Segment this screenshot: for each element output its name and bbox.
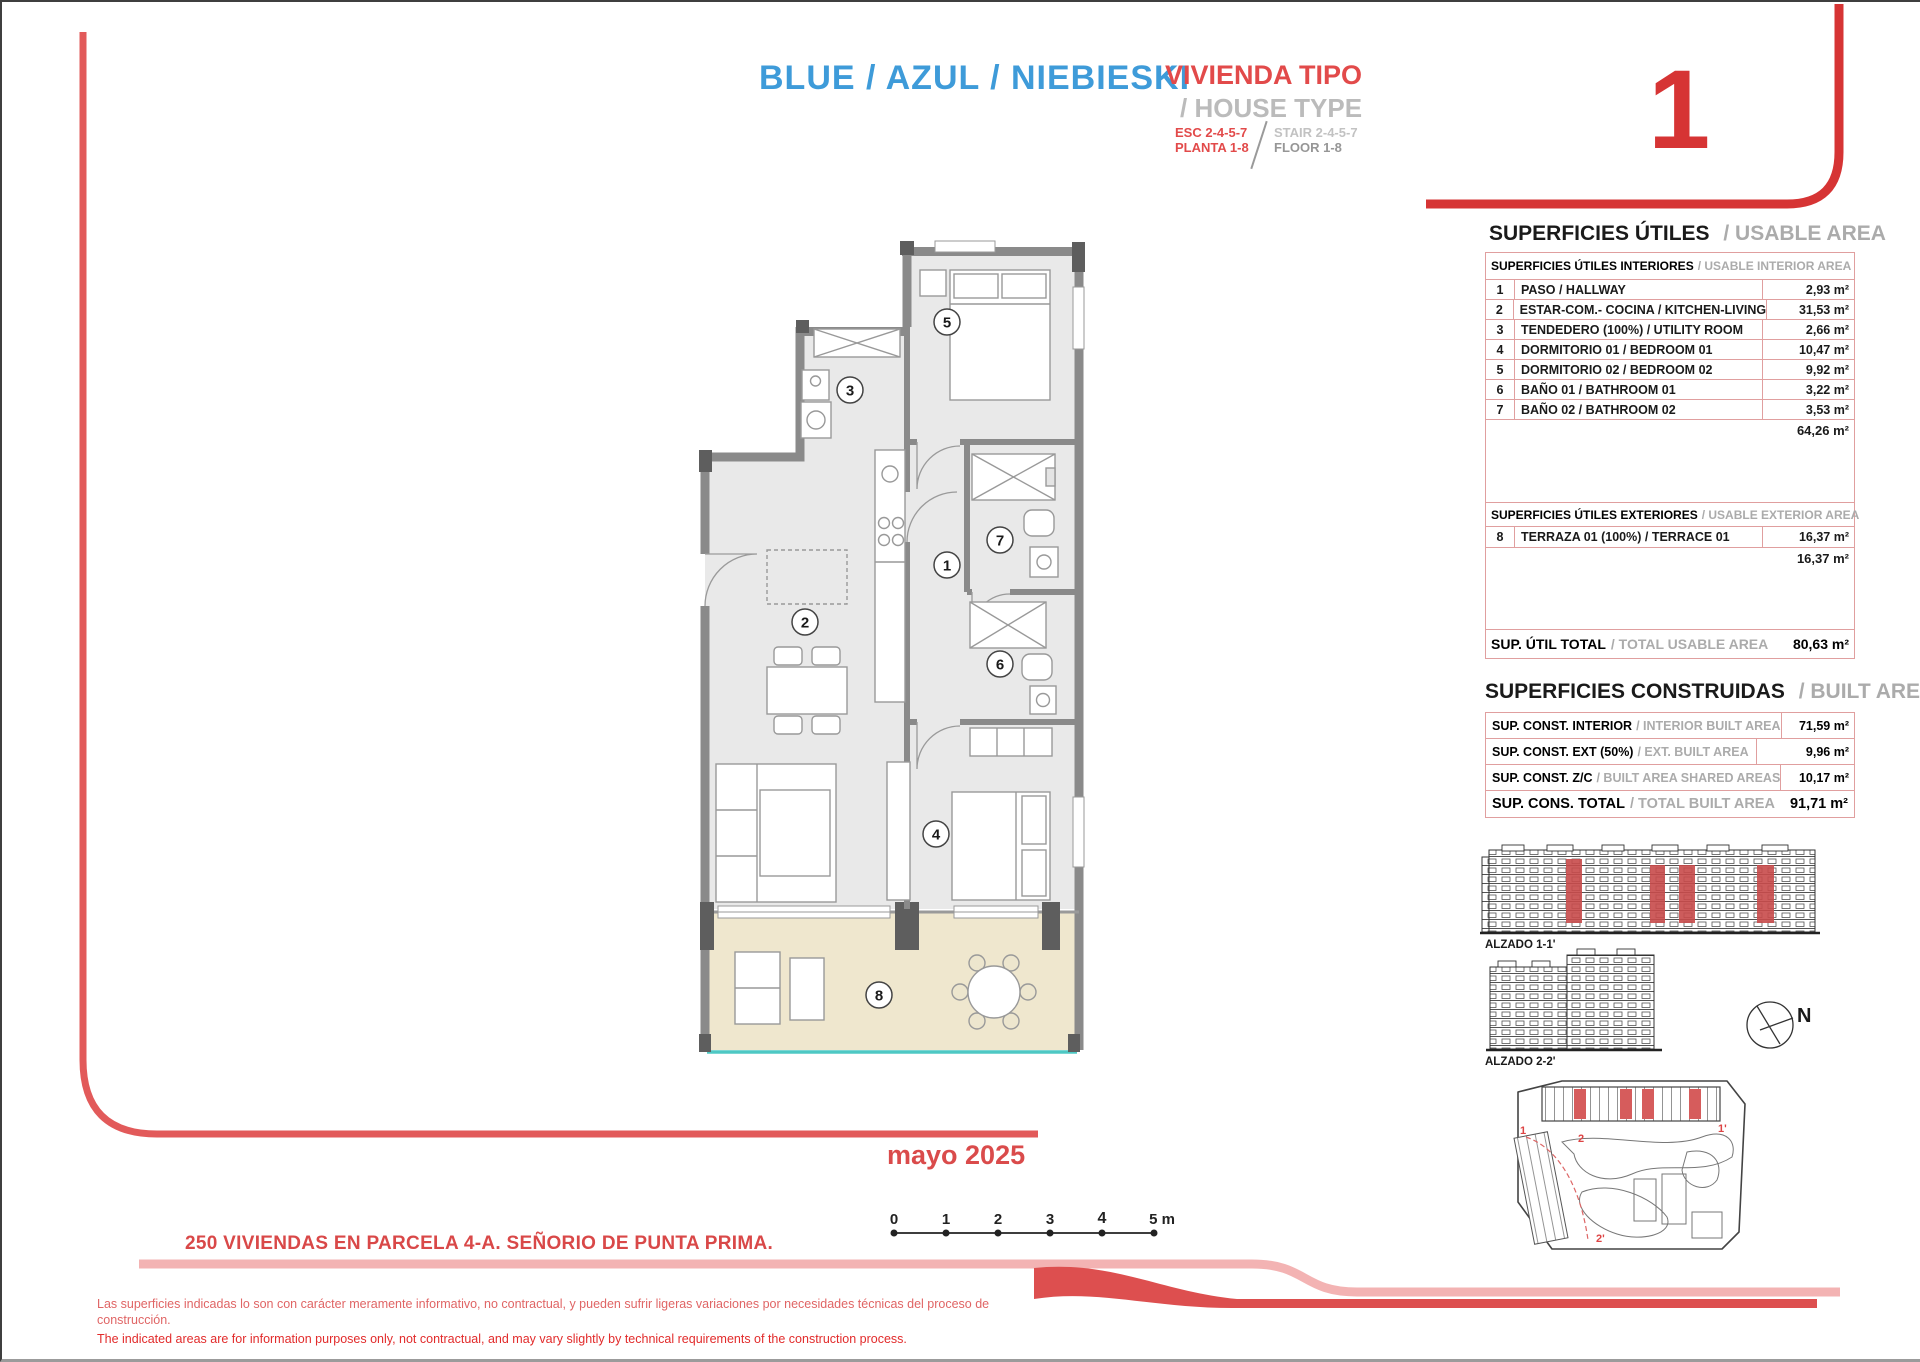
row-label-es: SUP. CONST. Z/C [1492,771,1592,785]
row-area: 3,53 m² [1762,400,1854,419]
usable-total-row: SUP. ÚTIL TOTAL / TOTAL USABLE AREA 80,6… [1486,629,1854,658]
usable-interior-header-es: SUPERFICIES ÚTILES INTERIORES [1491,259,1694,273]
table-spacer [1486,441,1854,502]
usable-total-label-en: / TOTAL USABLE AREA [1611,636,1768,652]
scale-label-2: 2 [994,1211,1002,1228]
terrace-round-table [968,966,1020,1018]
site-marker-1p: 1' [1718,1123,1727,1135]
sink-01 [1030,686,1056,714]
sofa [716,764,836,902]
floor-plan: 1 2 3 4 5 6 7 8 [699,241,1085,1052]
row-area: 10,47 m² [1762,340,1854,359]
row-label: ESTAR-COM.- COCINA / KITCHEN-LIVING [1514,300,1767,319]
table-row: 6 BAÑO 01 / BATHROOM 01 3,22 m² [1486,380,1854,400]
disclaimer-en: The indicated areas are for information … [97,1332,907,1346]
table-row: 3 TENDEDERO (100%) / UTILITY ROOM 2,66 m… [1486,320,1854,340]
disclaimer-es-line2: construcción. [97,1313,989,1329]
row-area: 9,92 m² [1762,360,1854,379]
row-label: BAÑO 01 / BATHROOM 01 [1515,380,1762,399]
row-area: 16,37 m² [1762,527,1854,547]
red-swoosh-shape [1034,1267,1817,1308]
plan-sheet-page: 1 2 3 4 5 6 7 8 [0,0,1920,1362]
dining-table [767,667,847,714]
row-num: 5 [1486,360,1515,379]
kitchen-fixtures [875,450,905,702]
row-num: 1 [1486,280,1515,299]
north-compass-icon: N [1747,1002,1811,1048]
side-lounger [790,958,824,1020]
stair-floor-en: STAIR 2-4-5-7 FLOOR 1-8 [1274,126,1358,156]
built-area-table: SUP. CONST. INTERIOR / INTERIOR BUILT AR… [1485,712,1855,818]
sideboard [887,762,910,900]
scale-bar: 0 1 2 3 4 5 m [890,1210,1175,1237]
usable-total-label-es: SUP. ÚTIL TOTAL [1491,636,1606,652]
usable-total-value: 80,63 m² [1793,636,1849,652]
washer-icon [801,402,831,438]
row-label-en: / INTERIOR BUILT AREA [1636,719,1780,733]
room-badge-3: 3 [846,383,854,400]
row-label: TERRAZA 01 (100%) / TERRACE 01 [1515,527,1762,547]
room-badge-2: 2 [801,615,809,632]
project-title: 250 VIVIENDAS EN PARCELA 4-A. SEÑORIO DE… [185,1233,773,1255]
top-right-frame-line [1426,4,1839,204]
stair-es: ESC 2-4-5-7 [1175,126,1249,141]
built-total-label-en: / TOTAL BUILT AREA [1630,796,1775,812]
row-label-es: SUP. CONST. EXT (50%) [1492,745,1633,759]
built-area-heading: SUPERFICIES CONSTRUIDAS / BUILT AREA [1485,680,1920,704]
row-label: DORMITORIO 01 / BEDROOM 01 [1515,340,1762,359]
room-badge-4: 4 [932,827,941,844]
house-type-label-es: VIVIENDA TIPO [1165,60,1362,91]
stair-en: STAIR 2-4-5-7 [1274,126,1358,141]
table-row: SUP. CONST. INTERIOR / INTERIOR BUILT AR… [1486,713,1854,739]
table-row: 5 DORMITORIO 02 / BEDROOM 02 9,92 m² [1486,360,1854,380]
row-area: 31,53 m² [1766,300,1854,319]
table-row: SUP. CONST. EXT (50%) / EXT. BUILT AREA … [1486,739,1854,765]
stair-floor-es: ESC 2-4-5-7 PLANTA 1-8 [1175,126,1249,156]
room-badge-1: 1 [943,558,951,575]
row-num: 2 [1486,300,1514,319]
site-marker-2p: 2' [1596,1233,1605,1245]
site-marker-1: 1 [1520,1125,1526,1137]
room-badge-7: 7 [996,533,1004,550]
bedside-table [920,270,946,296]
toilet-01 [1022,654,1052,680]
usable-interior-header: SUPERFICIES ÚTILES INTERIORES / USABLE I… [1486,253,1854,280]
row-label-es: SUP. CONST. INTERIOR [1492,719,1632,733]
row-num: 7 [1486,400,1515,419]
elevation-2-drawing: ALZADO 2-2' [1485,949,1662,1068]
usable-exterior-header-en: / USABLE EXTERIOR AREA [1702,508,1860,522]
row-area: 2,66 m² [1762,320,1854,339]
elevation-2-label: ALZADO 2-2' [1485,1056,1556,1068]
table-row: 8 TERRAZA 01 (100%) / TERRACE 01 16,37 m… [1486,527,1854,548]
built-total-value: 91,71 m² [1790,796,1848,812]
room-badge-8: 8 [875,988,883,1005]
usable-area-heading-es: SUPERFICIES ÚTILES [1489,222,1710,245]
scale-label-3: 3 [1046,1211,1054,1228]
row-label: TENDEDERO (100%) / UTILITY ROOM [1515,320,1762,339]
disclaimer-es: Las superficies indicadas lo son con car… [97,1297,989,1328]
room-badge-6: 6 [996,657,1004,674]
row-num: 4 [1486,340,1515,359]
wardrobe-01 [970,728,1052,756]
scale-label-1: 1 [942,1211,950,1228]
room-badge-5: 5 [943,315,951,332]
row-area: 2,93 m² [1762,280,1854,299]
scale-label-5: 5 m [1149,1211,1175,1228]
row-label: BAÑO 02 / BATHROOM 02 [1515,400,1762,419]
built-area-heading-es: SUPERFICIES CONSTRUIDAS [1485,680,1785,703]
disclaimer-es-line1: Las superficies indicadas lo son con car… [97,1297,989,1313]
elevation-1-drawing: ALZADO 1-1' [1480,845,1820,951]
project-color-title: BLUE / AZUL / NIEBIESKI [759,59,1190,98]
row-value: 9,96 m² [1756,739,1854,764]
site-plan-drawing: 1 1' 2 2' [1514,1081,1745,1249]
pink-swoosh-line [139,1264,1840,1292]
row-num: 6 [1486,380,1515,399]
usable-interior-header-en: / USABLE INTERIOR AREA [1698,259,1852,273]
built-total-label-es: SUP. CONS. TOTAL [1492,796,1625,812]
house-type-label-en: / HOUSE TYPE [1180,93,1362,124]
elevation-1-label: ALZADO 1-1' [1485,939,1556,951]
row-label-en: / BUILT AREA SHARED AREAS [1596,771,1780,785]
usable-area-heading: SUPERFICIES ÚTILES / USABLE AREA [1489,222,1886,246]
table-row: 1 PASO / HALLWAY 2,93 m² [1486,280,1854,300]
usable-exterior-header-es: SUPERFICIES ÚTILES EXTERIORES [1491,508,1698,522]
row-label: DORMITORIO 02 / BEDROOM 02 [1515,360,1762,379]
floor-en: FLOOR 1-8 [1274,141,1358,156]
site-marker-2: 2 [1578,1133,1584,1145]
row-area: 3,22 m² [1762,380,1854,399]
table-row: 2 ESTAR-COM.- COCINA / KITCHEN-LIVING 31… [1486,300,1854,320]
dryer-icon [802,370,829,400]
table-row: 4 DORMITORIO 01 / BEDROOM 01 10,47 m² [1486,340,1854,360]
north-label: N [1797,1005,1811,1027]
exterior-subtotal: 16,37 m² [1486,548,1854,568]
scale-label-0: 0 [890,1211,898,1228]
date-label: mayo 2025 [887,1140,1025,1171]
row-label: PASO / HALLWAY [1515,280,1762,299]
row-value: 10,17 m² [1780,765,1854,790]
usable-area-table: SUPERFICIES ÚTILES INTERIORES / USABLE I… [1485,252,1855,659]
interior-subtotal: 64,26 m² [1486,420,1854,441]
row-num: 8 [1486,527,1515,547]
kitchen-counter [875,450,905,702]
scale-label-4: 4 [1098,1210,1107,1227]
sink-02 [1030,547,1058,577]
built-area-heading-en: / BUILT AREA [1799,680,1920,703]
built-total-row: SUP. CONS. TOTAL / TOTAL BUILT AREA 91,7… [1486,791,1854,817]
table-row: SUP. CONST. Z/C / BUILT AREA SHARED AREA… [1486,765,1854,791]
usable-exterior-header: SUPERFICIES ÚTILES EXTERIORES / USABLE E… [1486,502,1854,527]
row-label-en: / EXT. BUILT AREA [1637,745,1748,759]
usable-area-heading-en: / USABLE AREA [1723,222,1886,245]
table-spacer [1486,568,1854,629]
floor-es: PLANTA 1-8 [1175,141,1249,156]
row-value: 71,59 m² [1781,713,1854,738]
row-num: 3 [1486,320,1515,339]
house-type-number: 1 [1648,54,1710,166]
toilet-02 [1024,510,1054,536]
table-row: 7 BAÑO 02 / BATHROOM 02 3,53 m² [1486,400,1854,420]
